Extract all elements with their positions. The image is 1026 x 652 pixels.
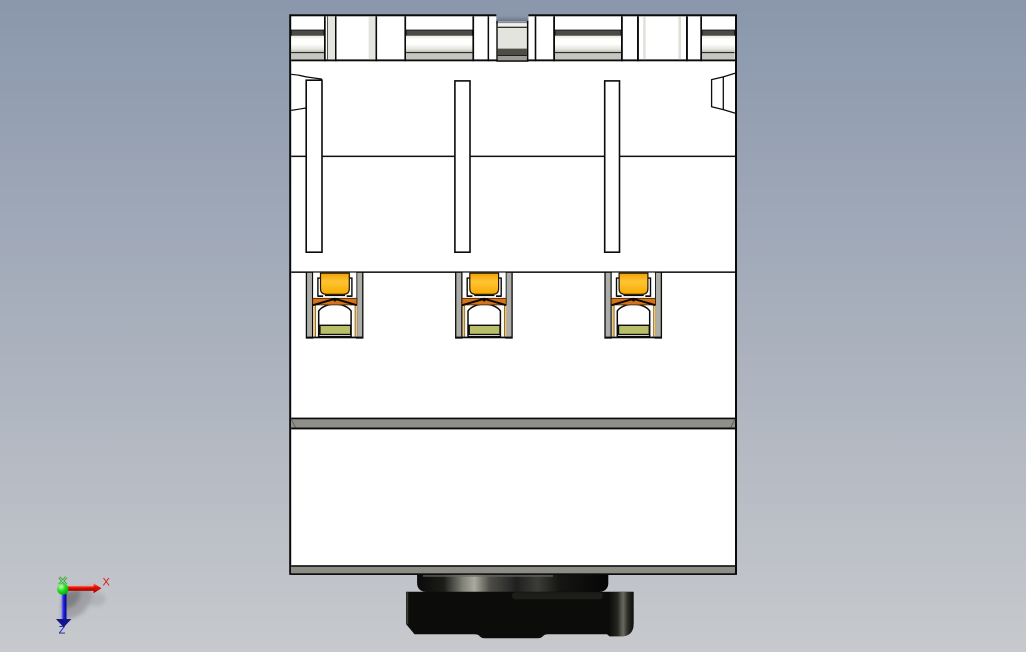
- svg-text:X: X: [103, 576, 111, 588]
- svg-text:Z: Z: [59, 624, 66, 636]
